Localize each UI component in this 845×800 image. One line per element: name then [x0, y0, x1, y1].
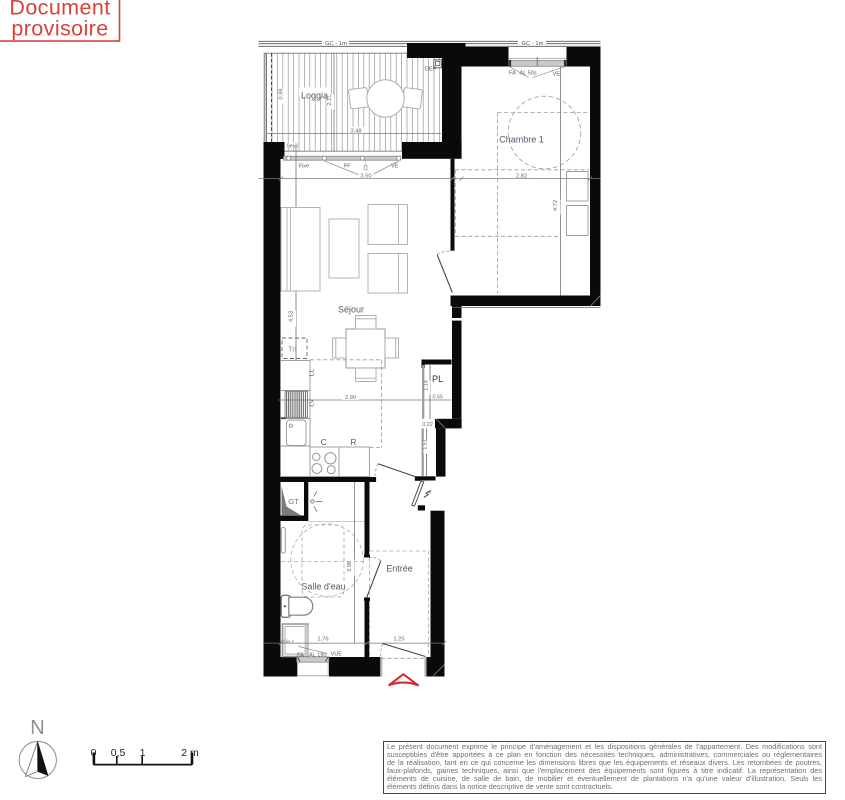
svg-text:Tri: Tri	[288, 345, 297, 354]
svg-text:GC - 1m: GC - 1m	[522, 41, 544, 47]
svg-text:Chambre 1: Chambre 1	[499, 134, 544, 144]
svg-text:1.76: 1.76	[317, 637, 328, 643]
svg-text:Châs.s: Châs.s	[281, 639, 294, 644]
svg-text:2.82: 2.82	[516, 173, 527, 179]
svg-text:AL 50s: AL 50s	[520, 71, 537, 77]
svg-text:R: R	[351, 438, 357, 447]
svg-text:0.22: 0.22	[422, 422, 433, 428]
svg-text:C: C	[321, 438, 327, 447]
svg-text:AL 190: AL 190	[309, 652, 327, 658]
svg-text:2.90: 2.90	[345, 395, 356, 401]
svg-text:Entrée: Entrée	[386, 564, 413, 574]
svg-text:1.51: 1.51	[422, 439, 428, 450]
svg-text:3.98: 3.98	[347, 561, 353, 572]
svg-text:3.48: 3.48	[350, 128, 361, 134]
svg-text:0.55: 0.55	[433, 395, 444, 401]
svg-text:Loggia: Loggia	[301, 90, 328, 100]
svg-text:VUE: VUE	[331, 652, 343, 658]
svg-text:2 m: 2 m	[181, 747, 199, 759]
svg-text:VE: VE	[553, 72, 561, 78]
svg-text:GC - 1m: GC - 1m	[325, 41, 347, 47]
svg-text:1.14: 1.14	[423, 380, 429, 391]
svg-text:FA: FA	[297, 652, 304, 658]
svg-text:LL: LL	[309, 369, 316, 377]
svg-text:3.50: 3.50	[360, 174, 371, 180]
svg-text:Salle d'eau: Salle d'eau	[301, 581, 345, 591]
svg-text:0.88: 0.88	[278, 89, 284, 100]
svg-text:N: N	[30, 717, 44, 739]
svg-text:Séjour: Séjour	[338, 304, 364, 314]
svg-text:1: 1	[140, 747, 146, 759]
svg-text:Fixe: Fixe	[299, 164, 310, 170]
svg-text:1.25: 1.25	[393, 637, 404, 643]
svg-text:GT: GT	[288, 497, 299, 506]
svg-text:DEP: DEP	[425, 67, 437, 73]
svg-text:0: 0	[91, 747, 97, 759]
svg-text:4.53: 4.53	[289, 311, 295, 322]
svg-text:PF: PF	[344, 164, 352, 170]
svg-text:FA: FA	[509, 71, 516, 77]
svg-text:PL: PL	[432, 374, 443, 384]
svg-text:provisoire: provisoire	[11, 17, 108, 41]
svg-text:4.72: 4.72	[553, 200, 559, 211]
svg-text:0,5: 0,5	[111, 747, 126, 759]
